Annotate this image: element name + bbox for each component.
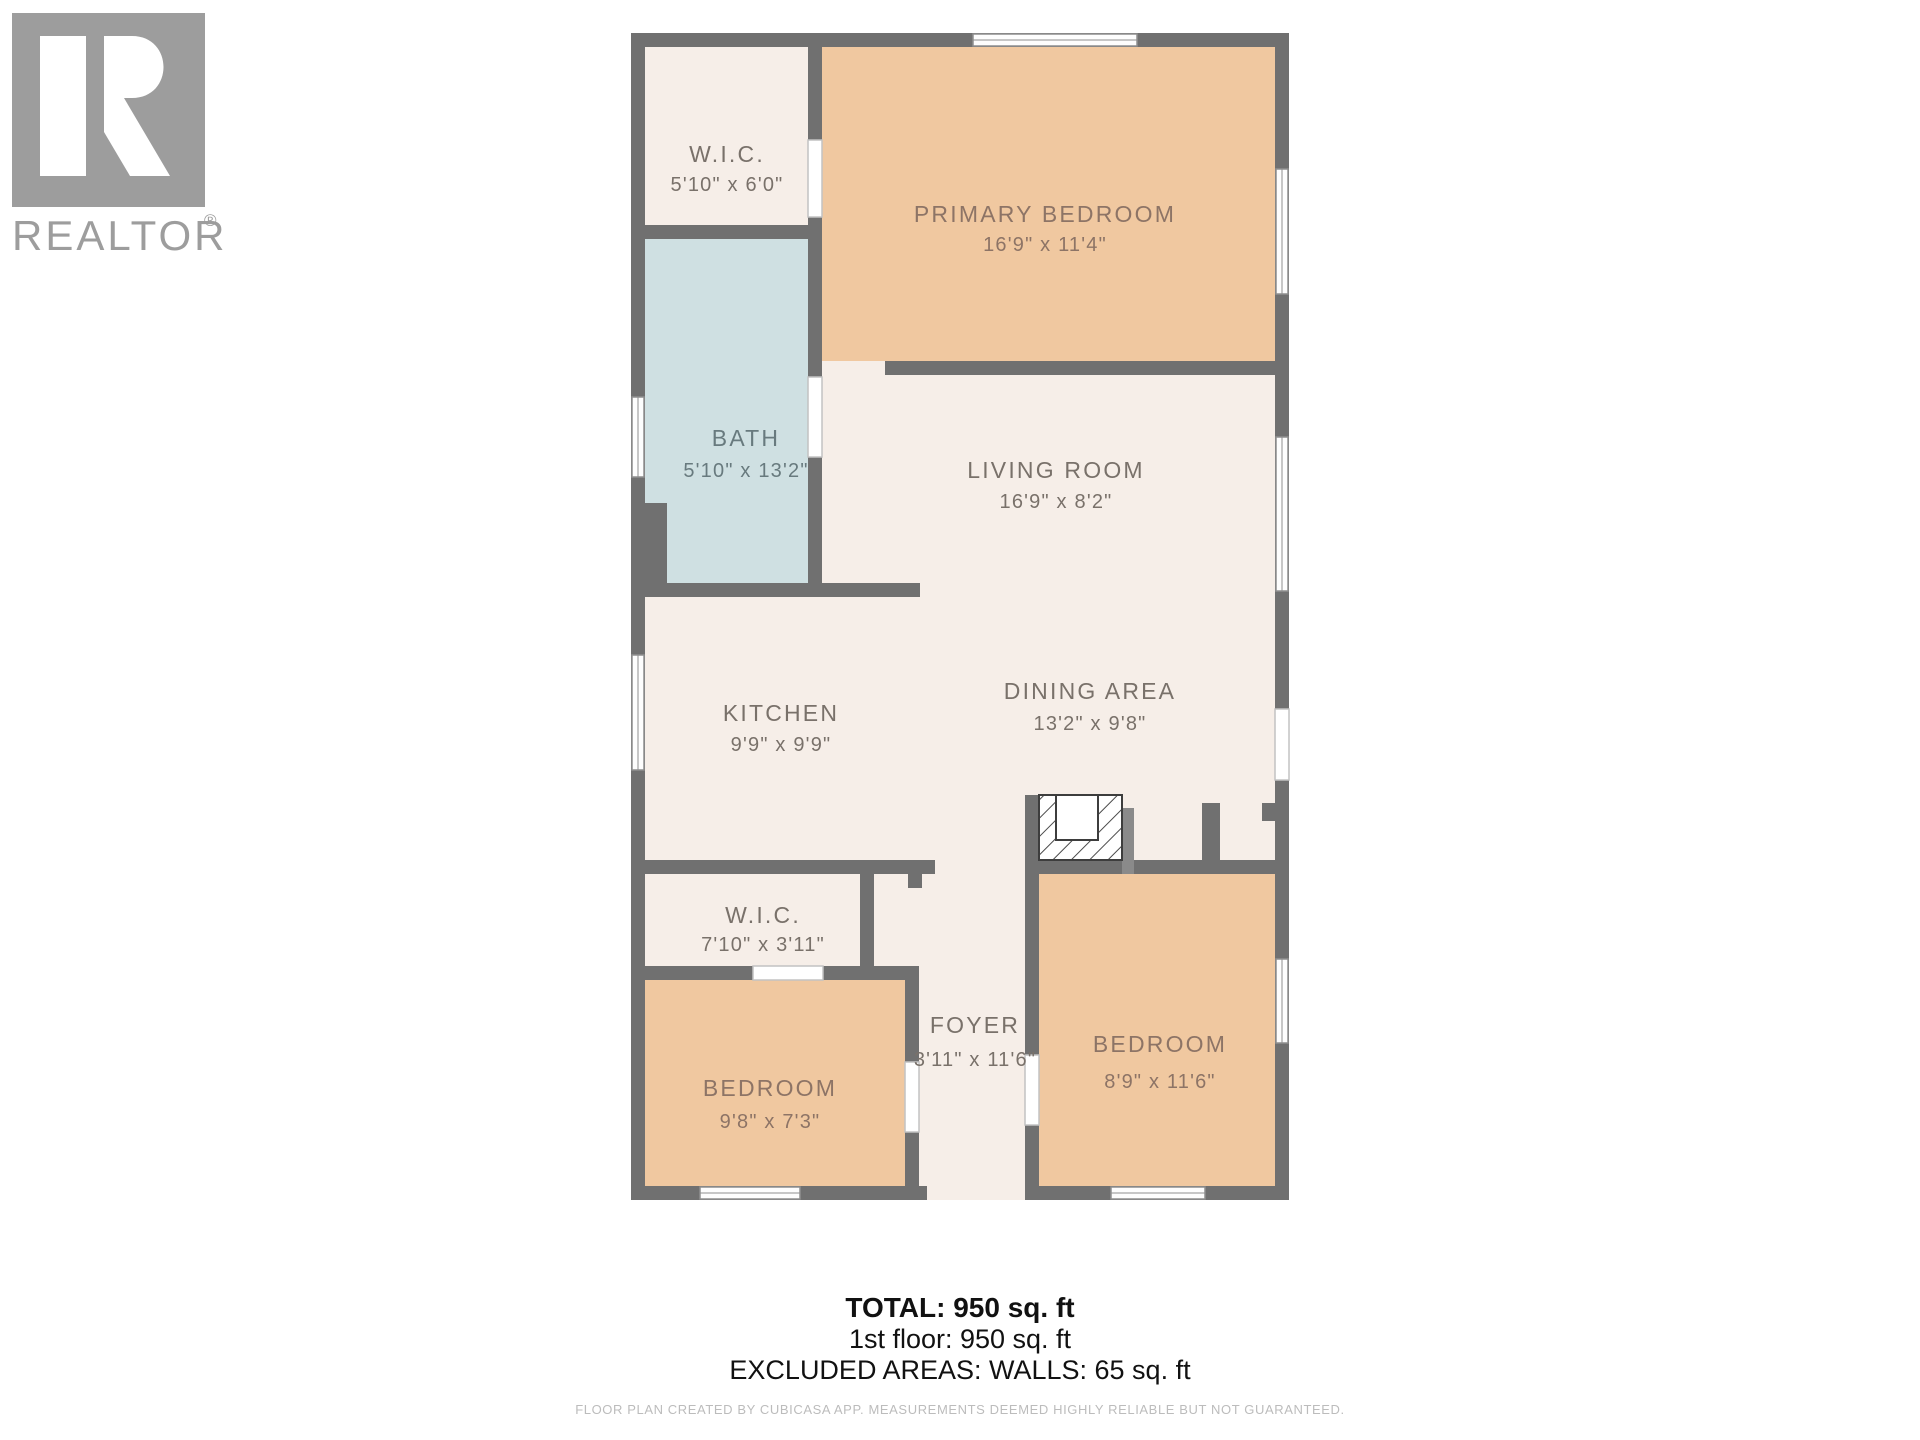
window-primary-right	[1276, 169, 1288, 294]
label-wic-lower-dims: 7'10" x 3'11"	[701, 934, 825, 956]
area-summary: TOTAL: 950 sq. ft 1st floor: 950 sq. ft …	[0, 1292, 1920, 1417]
window-bath-left	[632, 397, 644, 477]
opening-foyer-entry	[927, 1186, 1025, 1200]
label-wic-lower-name: W.I.C.	[725, 902, 801, 928]
label-wic-top-dims: 5'10" x 6'0"	[671, 174, 784, 196]
label-living-room-name: LIVING ROOM	[967, 457, 1145, 483]
label-kitchen-name: KITCHEN	[723, 700, 839, 726]
label-bedroom-right-name: BEDROOM	[1093, 1031, 1227, 1057]
realtor-logo: REALTOR ®	[12, 13, 228, 259]
door-bedroom-left	[905, 1062, 919, 1132]
window-kitchen-left	[632, 655, 644, 770]
floor-bath	[645, 239, 808, 583]
label-primary-bedroom-dims: 16'9" x 11'4"	[983, 234, 1107, 256]
label-living-room-dims: 16'9" x 8'2"	[1000, 491, 1113, 513]
opening-primary-bedroom	[822, 361, 885, 375]
total-area-text: TOTAL: 950 sq. ft	[0, 1292, 1920, 1324]
first-floor-area-text: 1st floor: 950 sq. ft	[0, 1324, 1920, 1355]
label-bath-name: BATH	[712, 425, 780, 451]
opening-dining-patio	[1275, 709, 1289, 780]
floor-plan-canvas: REALTOR ®	[0, 0, 1920, 1440]
window-living-right	[1276, 437, 1288, 591]
excluded-areas-text: EXCLUDED AREAS: WALLS: 65 sq. ft	[0, 1355, 1920, 1386]
realtor-logo-text: REALTOR	[12, 212, 228, 259]
label-wic-top-name: W.I.C.	[689, 141, 765, 167]
floor-bedroom-right	[1039, 874, 1275, 1186]
label-kitchen-dims: 9'9" x 9'9"	[731, 734, 832, 756]
label-bedroom-left-dims: 9'8" x 7'3"	[720, 1111, 821, 1133]
label-bath-dims: 5'10" x 13'2"	[683, 460, 808, 482]
window-bedroom-left-bottom	[700, 1187, 800, 1199]
label-foyer-name: FOYER	[930, 1012, 1020, 1038]
label-bedroom-left-name: BEDROOM	[703, 1075, 837, 1101]
disclaimer-text: FLOOR PLAN CREATED BY CUBICASA APP. MEAS…	[0, 1402, 1920, 1417]
door-wic-lower	[753, 966, 823, 980]
label-foyer-dims: 3'11" x 11'6"	[914, 1049, 1036, 1071]
label-bedroom-right-dims: 8'9" x 11'6"	[1104, 1071, 1215, 1093]
window-bedroom-right	[1276, 959, 1288, 1043]
door-wic-top	[808, 140, 822, 217]
fireplace-shadow	[1122, 808, 1134, 874]
label-dining-area-dims: 13'2" x 9'8"	[1034, 713, 1147, 735]
fireplace-flue	[1056, 795, 1098, 840]
registered-trademark-icon: ®	[204, 211, 217, 230]
window-primary-top	[973, 34, 1137, 46]
label-dining-area-name: DINING AREA	[1004, 678, 1176, 704]
door-bath	[808, 377, 822, 457]
label-primary-bedroom-name: PRIMARY BEDROOM	[914, 201, 1176, 227]
window-bedroom-right-bottom	[1111, 1187, 1205, 1199]
